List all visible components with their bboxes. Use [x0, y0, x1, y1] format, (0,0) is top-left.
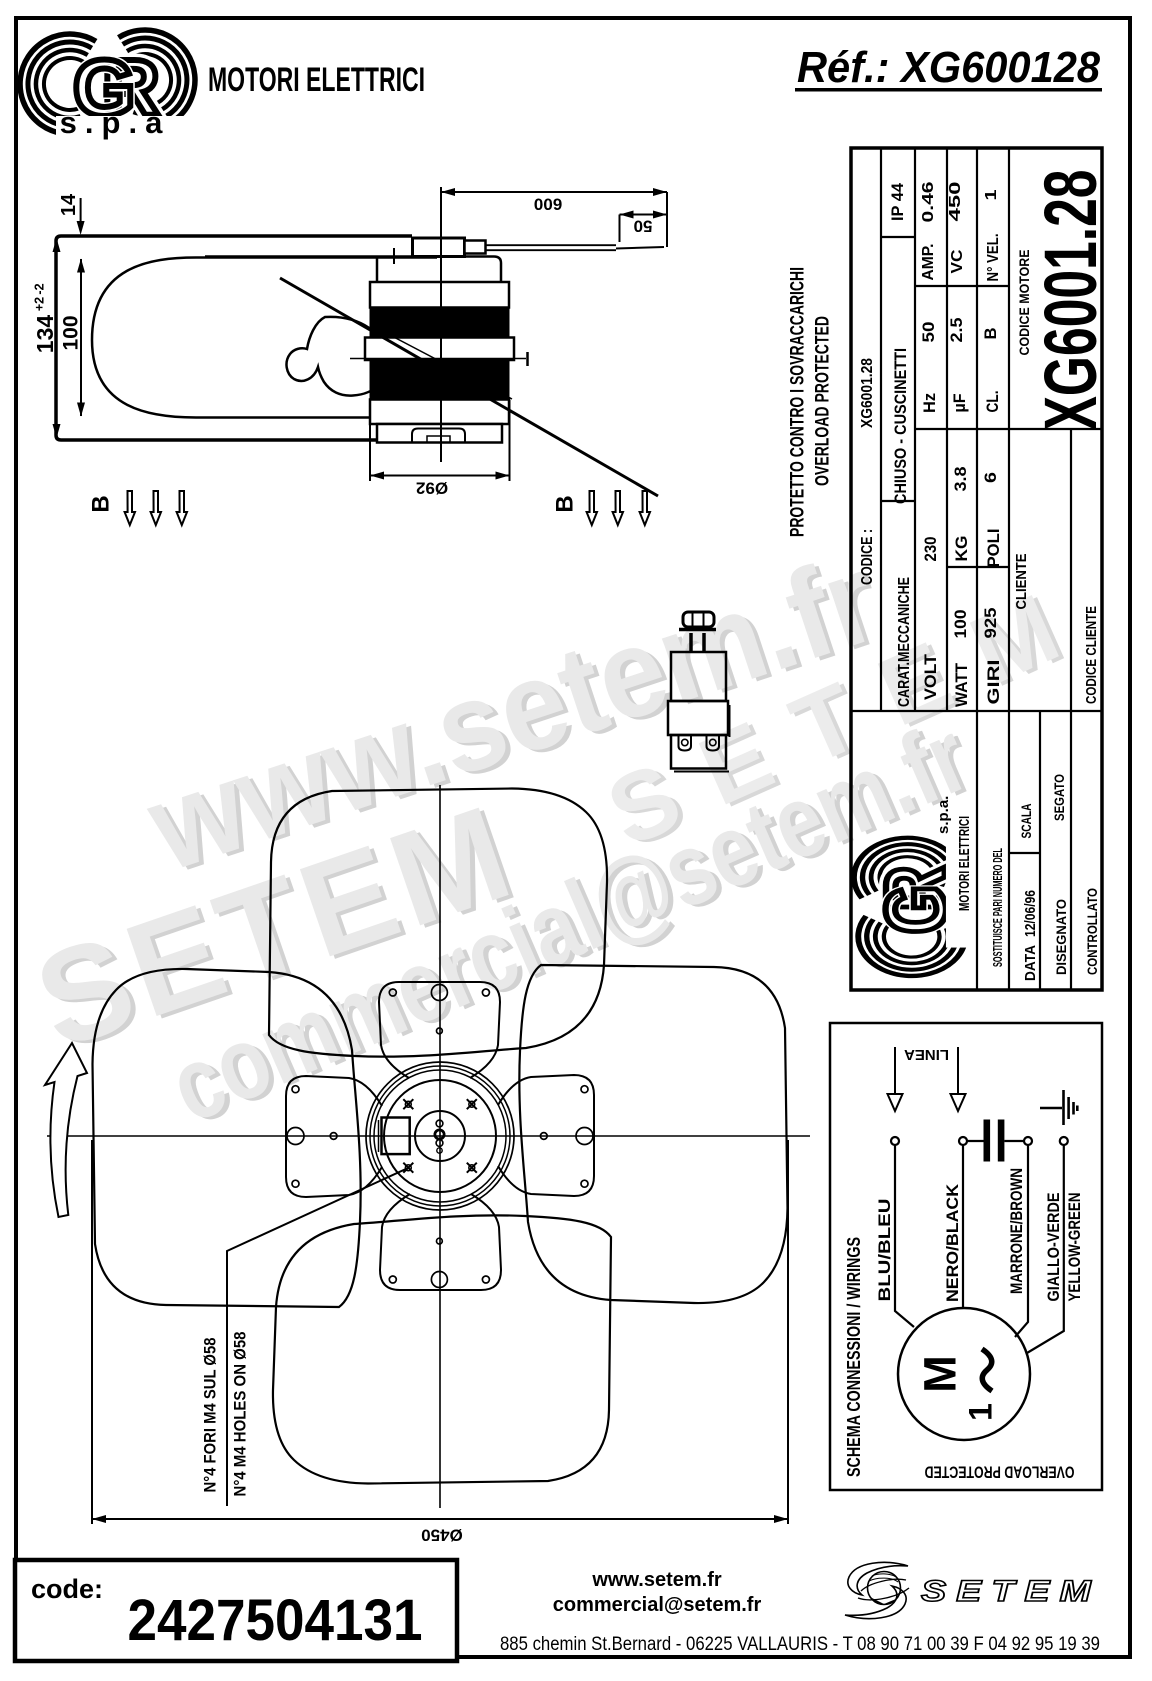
svg-text:OVERLOAD PROTECTED: OVERLOAD PROTECTED	[813, 316, 834, 486]
svg-text:KG: KG	[952, 536, 971, 562]
svg-text:code:: code:	[31, 1574, 103, 1604]
svg-text:NERO/BLACK: NERO/BLACK	[943, 1183, 962, 1302]
svg-text:AMP.: AMP.	[920, 244, 937, 281]
svg-text:SETEM: SETEM	[921, 1575, 1101, 1608]
svg-text:CLIENTE: CLIENTE	[1013, 554, 1030, 610]
svg-text:+2: +2	[33, 297, 47, 311]
svg-text:MARRONE/BROWN: MARRONE/BROWN	[1007, 1168, 1026, 1294]
svg-text:POLI: POLI	[984, 529, 1003, 568]
svg-text:134: 134	[32, 315, 58, 354]
svg-text:s.p.a.: s.p.a.	[935, 796, 952, 834]
svg-text:IP 44: IP 44	[888, 182, 907, 221]
svg-text:YELLOW-GREEN: YELLOW-GREEN	[1065, 1193, 1084, 1302]
svg-text:0.46: 0.46	[920, 181, 937, 222]
svg-text:M: M	[915, 1355, 966, 1393]
svg-text:-2: -2	[33, 283, 47, 294]
svg-text:Réf.: XG600128: Réf.: XG600128	[797, 43, 1100, 92]
svg-text:600: 600	[534, 195, 562, 214]
svg-text:Ø92: Ø92	[416, 479, 448, 498]
svg-text:B: B	[552, 495, 579, 512]
svg-text:LINEA: LINEA	[904, 1046, 949, 1063]
svg-text:N°4 FORI M4 SUL Ø58: N°4 FORI M4 SUL Ø58	[201, 1338, 220, 1493]
svg-text:MOTORI ELETTRICI: MOTORI ELETTRICI	[208, 61, 425, 99]
svg-text:SOSTITUISCE PARI NUMERO DEL: SOSTITUISCE PARI NUMERO DEL	[991, 848, 1005, 967]
svg-text:SCHEMA CONNESSIONI / WIRINGS: SCHEMA CONNESSIONI / WIRINGS	[844, 1237, 864, 1477]
svg-text:885 chemin St.Bernard - 0622: 885 chemin St.Bernard - 06225 VALLAURIS …	[500, 1634, 1100, 1655]
svg-text:100: 100	[951, 610, 970, 639]
svg-text:PROTETTO CONTRO I SOVRACCARICH: PROTETTO CONTRO I SOVRACCARICHI	[788, 267, 809, 537]
svg-text:B: B	[981, 328, 1000, 340]
svg-text:OVERLOAD PROTECTED: OVERLOAD PROTECTED	[925, 1463, 1075, 1482]
svg-text:s.p.a: s.p.a	[60, 105, 171, 140]
svg-text:XG6001.28: XG6001.28	[859, 358, 876, 428]
svg-text:N°4 M4 HOLES ON Ø58: N°4 M4 HOLES ON Ø58	[231, 1332, 250, 1497]
svg-text:1: 1	[983, 189, 1000, 200]
svg-text:450: 450	[947, 181, 964, 221]
svg-text:µF: µF	[950, 394, 969, 413]
svg-text:CARAT.MECCANICHE: CARAT.MECCANICHE	[896, 577, 913, 707]
svg-text:N° VEL.: N° VEL.	[985, 234, 1002, 282]
svg-text:commercial@setem.fr: commercial@setem.fr	[553, 1594, 762, 1616]
svg-text:VOLT: VOLT	[921, 653, 940, 700]
svg-text:12/06/96: 12/06/96	[1022, 890, 1039, 937]
svg-text:XG6001.28: XG6001.28	[1029, 170, 1112, 431]
svg-text:2427504131: 2427504131	[128, 1588, 423, 1653]
svg-text:1: 1	[963, 1403, 999, 1421]
svg-text:www.setem.fr: www.setem.fr	[591, 1569, 722, 1591]
svg-text:CODICE :: CODICE :	[859, 529, 876, 585]
svg-text:925: 925	[981, 608, 1000, 639]
svg-text:DATA: DATA	[1022, 945, 1039, 981]
svg-text:2.5: 2.5	[947, 318, 966, 343]
svg-text:6: 6	[981, 472, 1000, 483]
svg-text:14: 14	[58, 193, 80, 216]
svg-text:Hz: Hz	[920, 393, 939, 413]
svg-text:GIRI: GIRI	[984, 660, 1003, 705]
svg-text:MOTORI ELETTRICI: MOTORI ELETTRICI	[956, 816, 973, 911]
svg-text:GIALLO-VERDE: GIALLO-VERDE	[1044, 1193, 1063, 1302]
svg-text:DISEGNATO: DISEGNATO	[1053, 899, 1069, 975]
svg-text:CODICE CLIENTE: CODICE CLIENTE	[1083, 606, 1100, 704]
svg-text:CONTROLLATO: CONTROLLATO	[1084, 888, 1100, 975]
svg-text:CHIUSO - CUSCINETTI: CHIUSO - CUSCINETTI	[891, 348, 910, 504]
svg-text:SEGATO: SEGATO	[1051, 774, 1067, 821]
svg-text:3.8: 3.8	[951, 467, 970, 492]
svg-text:CL.: CL.	[983, 391, 1002, 413]
svg-text:Ø450: Ø450	[421, 1526, 463, 1545]
svg-text:B: B	[88, 495, 115, 512]
svg-text:50: 50	[634, 217, 653, 236]
svg-text:230: 230	[921, 537, 940, 562]
svg-text:BLU/BLEU: BLU/BLEU	[875, 1199, 894, 1302]
svg-text:SCALA: SCALA	[1018, 804, 1034, 839]
svg-text:WATT: WATT	[952, 662, 971, 707]
svg-text:100: 100	[60, 315, 83, 350]
svg-text:50: 50	[919, 322, 938, 343]
svg-text:VC: VC	[949, 249, 966, 273]
